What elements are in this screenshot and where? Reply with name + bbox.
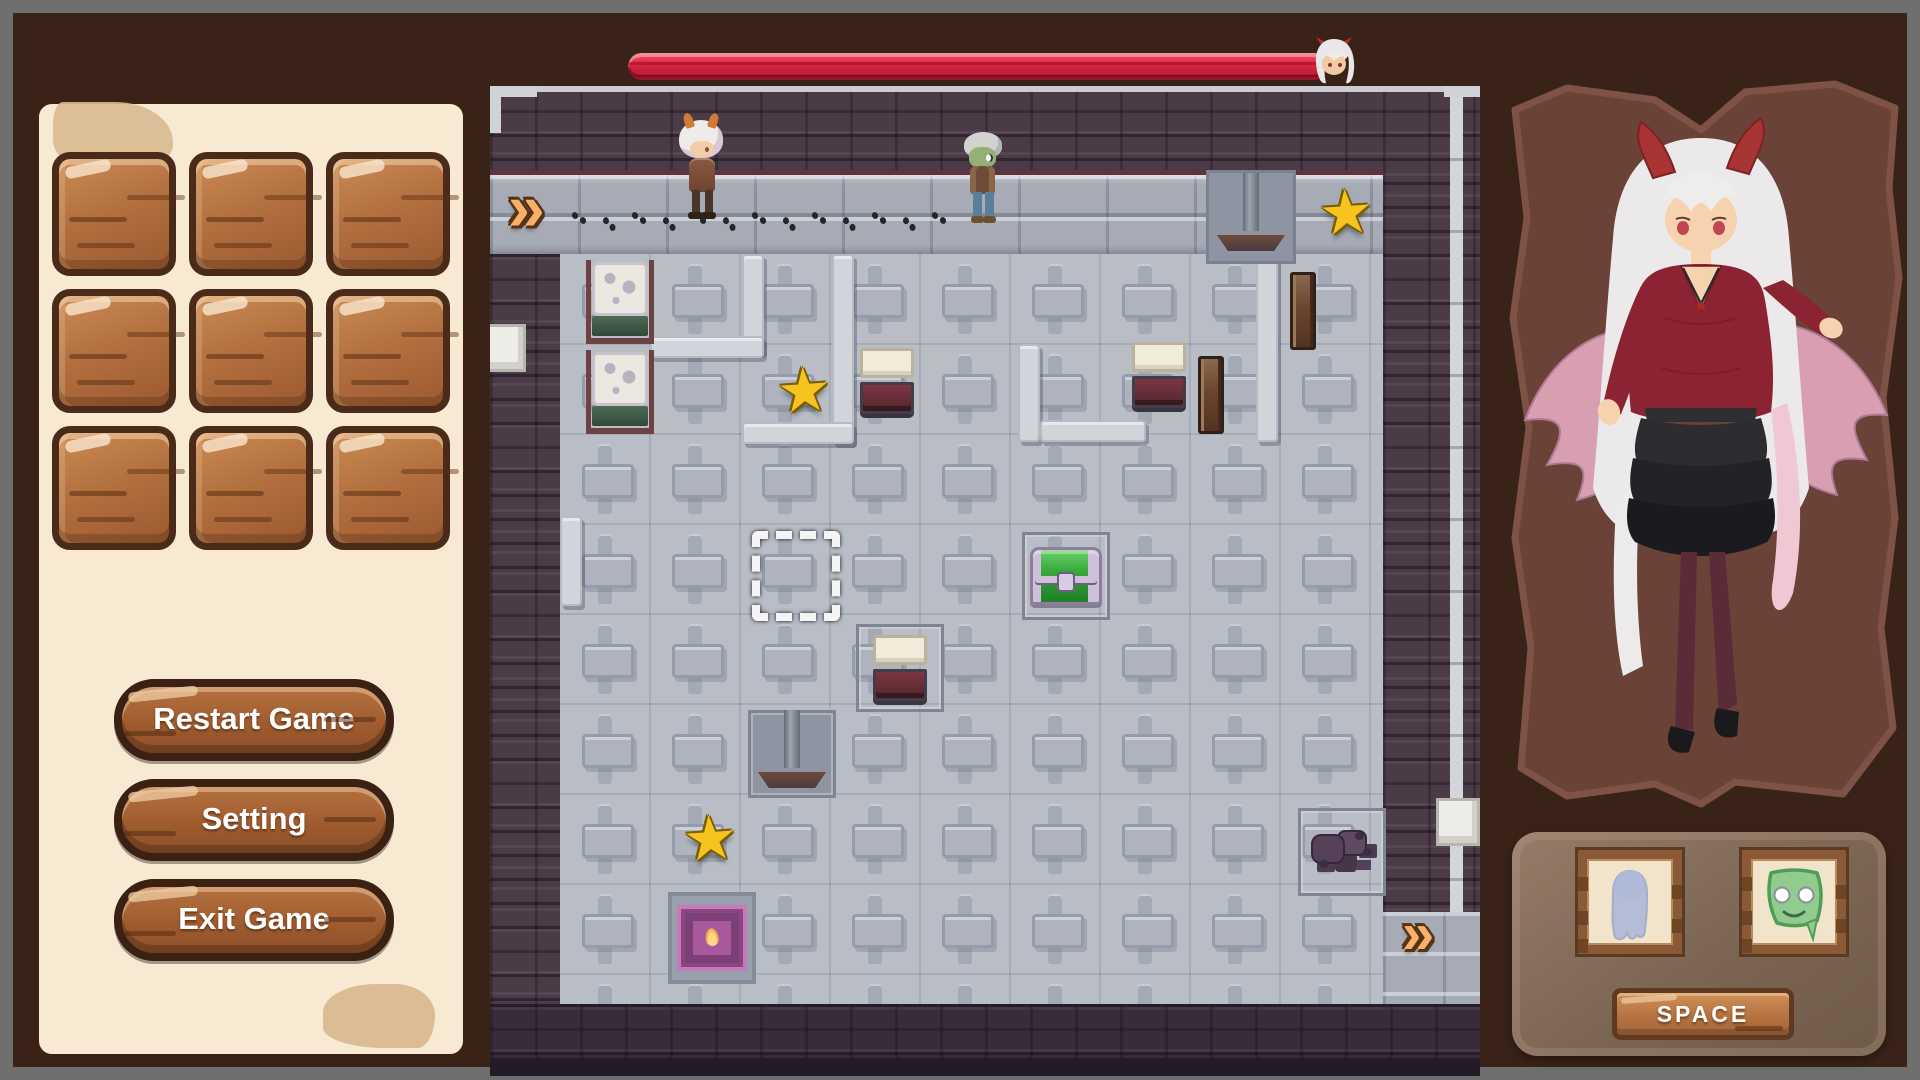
floor-tile <box>1190 974 1280 1004</box>
star-icon: ★ <box>684 813 736 865</box>
metal-wall-panel <box>1198 356 1224 434</box>
character-panel <box>1505 68 1905 816</box>
pressure-graphic <box>873 635 927 701</box>
zombie-enemy <box>960 132 1006 228</box>
floor-tile <box>1370 524 1383 614</box>
floor-tile <box>1100 794 1190 884</box>
floor-tile <box>560 434 650 524</box>
space-button[interactable]: SPACE <box>1612 988 1794 1040</box>
press-graphic <box>751 710 833 798</box>
zombie-leg-r <box>985 192 994 216</box>
floor-tile <box>830 704 920 794</box>
floor-tile <box>920 254 1010 344</box>
player-face <box>690 141 714 157</box>
exit-game-button[interactable]: Exit Game <box>114 879 394 961</box>
rock-pile <box>1298 808 1386 896</box>
arrow-icon: » <box>1402 908 1434 960</box>
stone-block <box>490 324 526 372</box>
floor-tile <box>1370 254 1383 344</box>
floor-tile <box>1010 254 1100 344</box>
ghost-figure-icon <box>1587 859 1673 945</box>
dialog-panel: SPACE <box>1512 832 1886 1056</box>
silver-strip <box>1450 86 1463 912</box>
corner-bracket <box>490 86 537 133</box>
marble-graphic <box>592 262 648 336</box>
pressure-graphic <box>1132 342 1186 408</box>
bottom-edge <box>490 1058 1480 1076</box>
floor-tile <box>1100 614 1190 704</box>
game-background: Restart Game Setting Exit Game »★★★» <box>13 13 1907 1067</box>
floor-tile <box>1010 974 1100 1004</box>
chest-graphic <box>1030 547 1102 605</box>
maze-ridge <box>1018 344 1040 442</box>
star-pickup: ★ <box>1318 184 1374 242</box>
inventory-slot[interactable] <box>326 152 450 276</box>
star-icon: ★ <box>1320 187 1372 239</box>
pressure-box <box>856 624 944 712</box>
inventory-grid[interactable] <box>52 152 452 552</box>
floor-tile <box>1010 794 1100 884</box>
press-graphic <box>1209 173 1293 261</box>
metal-wall-panel <box>1290 272 1316 350</box>
footprint <box>932 212 946 226</box>
floor-tile <box>1370 974 1383 1004</box>
floor-tile <box>1190 614 1280 704</box>
inventory-slot[interactable] <box>326 289 450 413</box>
inventory-slot[interactable] <box>52 289 176 413</box>
wblock-graphic <box>490 324 526 372</box>
floor-tile <box>1190 704 1280 794</box>
floor-tile <box>1010 614 1100 704</box>
inventory-slot[interactable] <box>52 152 176 276</box>
floor-tile <box>560 614 650 704</box>
floor-tile <box>920 524 1010 614</box>
floor-tile <box>830 884 920 974</box>
floor-tile <box>1370 884 1383 974</box>
floor-tile <box>1370 614 1383 704</box>
floor-tile <box>920 344 1010 434</box>
floor-tile <box>650 614 740 704</box>
selection-cursor[interactable] <box>752 532 840 620</box>
zombie-body <box>970 166 995 194</box>
rocks-graphic <box>1307 826 1377 878</box>
inventory-slot[interactable] <box>326 426 450 550</box>
star-icon: ★ <box>778 365 830 417</box>
floor-tile <box>1010 434 1100 524</box>
star-pickup: ★ <box>776 362 832 420</box>
floor-tile <box>650 704 740 794</box>
floor-tile <box>1010 884 1100 974</box>
floor-tile <box>740 434 830 524</box>
marble-block <box>586 260 654 344</box>
floor-tile <box>560 884 650 974</box>
marble-block <box>586 350 654 434</box>
player-character <box>676 120 728 228</box>
floor-tile <box>920 794 1010 884</box>
maze-ridge <box>1256 254 1278 442</box>
floor-tile <box>560 704 650 794</box>
marble-graphic <box>592 352 648 426</box>
inventory-slot[interactable] <box>189 289 313 413</box>
floor-tile <box>1190 524 1280 614</box>
inventory-slot[interactable] <box>52 426 176 550</box>
star-pickup: ★ <box>682 810 738 868</box>
press-trap <box>1206 170 1296 264</box>
floor-tile <box>1280 974 1370 1004</box>
slime-face-icon <box>1751 859 1837 945</box>
footprint <box>572 212 586 226</box>
player-leg-r <box>705 190 713 212</box>
player-portrait-icon <box>1309 35 1359 91</box>
game-window: Restart Game Setting Exit Game »★★★» <box>0 0 1920 1080</box>
floor-tile <box>830 794 920 884</box>
floor-tile <box>1010 704 1100 794</box>
corner-bracket <box>1444 86 1480 133</box>
floor-tile <box>830 434 920 524</box>
floor-tile <box>1100 254 1190 344</box>
player-body <box>689 158 715 192</box>
floor-tile <box>1100 434 1190 524</box>
boss-health-bar <box>628 53 1328 80</box>
floor-tile <box>830 974 920 1004</box>
zombie-leg-l <box>973 192 982 216</box>
floor-tile <box>650 524 740 614</box>
floor-tile <box>1280 614 1370 704</box>
stone-block <box>1436 798 1480 846</box>
floor-tile <box>1190 794 1280 884</box>
menu-panel: Restart Game Setting Exit Game <box>30 95 472 1063</box>
footprint <box>812 212 826 226</box>
floor-tile <box>1280 884 1370 974</box>
inventory-slot[interactable] <box>189 152 313 276</box>
character-illustration <box>1505 68 1905 816</box>
wblock-graphic <box>1436 798 1480 846</box>
floor-tile <box>560 794 650 884</box>
slime-portrait-frame[interactable] <box>1742 850 1846 954</box>
pressure-graphic <box>860 348 914 414</box>
floor-tile <box>650 254 740 344</box>
floor-tile <box>920 884 1010 974</box>
floor-tile <box>1100 884 1190 974</box>
rust-graphic <box>1198 356 1224 434</box>
floor-tile <box>1280 434 1370 524</box>
floor-tile <box>650 434 740 524</box>
floor-tile <box>740 794 830 884</box>
floor-tile <box>1370 344 1383 434</box>
treasure-chest[interactable] <box>1022 532 1110 620</box>
pressure-box <box>1132 342 1186 408</box>
floor-tile <box>1190 434 1280 524</box>
map-frame-top <box>490 86 1480 92</box>
floor-tile <box>1370 434 1383 524</box>
footprint <box>872 212 886 226</box>
restart-game-button[interactable]: Restart Game <box>114 679 394 761</box>
floor-tile <box>1100 704 1190 794</box>
arrow-icon: » <box>508 178 545 237</box>
press-trap <box>748 710 836 798</box>
floor-tile <box>1280 704 1370 794</box>
cursor-graphic <box>752 531 840 621</box>
flame-door[interactable] <box>668 892 756 984</box>
zombie-face <box>969 147 996 168</box>
footprint <box>632 212 646 226</box>
floor-tile <box>920 704 1010 794</box>
floor-tile <box>920 974 1010 1004</box>
floor-tile <box>920 434 1010 524</box>
health-fill <box>628 53 1328 80</box>
right-wall <box>1383 86 1480 912</box>
player-leg-l <box>692 190 700 212</box>
floor-tile <box>1100 524 1190 614</box>
floor-tile <box>740 614 830 704</box>
floor-tile <box>1100 974 1190 1004</box>
exit-arrow[interactable]: » <box>1402 908 1434 960</box>
inventory-slot[interactable] <box>189 426 313 550</box>
game-map[interactable]: »★★★» <box>490 86 1480 1076</box>
entry-arrow[interactable]: » <box>508 178 545 237</box>
setting-button[interactable]: Setting <box>114 779 394 861</box>
maze-ridge <box>832 254 854 444</box>
maze-ridge <box>742 422 854 444</box>
floor-tile <box>1370 704 1383 794</box>
ghost-portrait-frame[interactable] <box>1578 850 1682 954</box>
rust-graphic <box>1290 272 1316 350</box>
floor-tile <box>830 524 920 614</box>
maze-ridge <box>560 516 582 606</box>
maze-ridge <box>650 336 764 358</box>
floor-tile <box>560 974 650 1004</box>
door-graphic <box>677 905 747 971</box>
floor-tile <box>1190 884 1280 974</box>
floor-tile <box>1280 524 1370 614</box>
maze-ridge <box>1040 420 1146 442</box>
floor-tile <box>1280 344 1370 434</box>
footprint <box>752 212 766 226</box>
pressure-box <box>860 348 914 414</box>
